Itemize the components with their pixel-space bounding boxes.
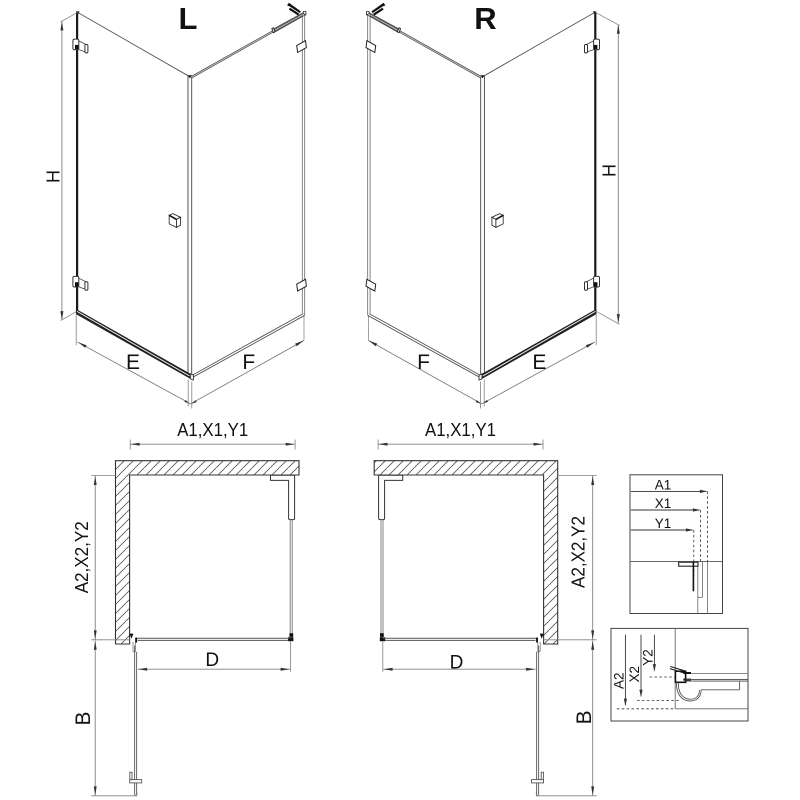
svg-text:A1,X1,Y1: A1,X1,Y1 <box>177 420 248 440</box>
svg-text:E: E <box>126 351 140 374</box>
svg-text:F: F <box>417 351 430 374</box>
svg-text:D: D <box>205 650 219 671</box>
svg-text:F: F <box>242 351 255 374</box>
svg-text:A2,X2,Y2: A2,X2,Y2 <box>569 516 589 588</box>
svg-text:L: L <box>179 1 198 36</box>
svg-text:Y2: Y2 <box>640 649 655 666</box>
svg-text:A1,X1,Y1: A1,X1,Y1 <box>425 420 496 440</box>
svg-text:B: B <box>72 711 95 725</box>
svg-text:E: E <box>532 351 546 374</box>
svg-text:H: H <box>43 170 63 183</box>
svg-text:R: R <box>474 1 496 36</box>
svg-text:D: D <box>450 653 464 674</box>
svg-text:H: H <box>600 164 620 177</box>
svg-text:Y1: Y1 <box>655 516 672 531</box>
svg-text:X2: X2 <box>627 666 642 683</box>
svg-text:X1: X1 <box>655 496 672 511</box>
svg-text:A2: A2 <box>612 672 627 689</box>
svg-text:A2,X2,Y2: A2,X2,Y2 <box>72 521 92 593</box>
svg-text:B: B <box>573 710 596 724</box>
svg-text:A1: A1 <box>655 477 672 492</box>
